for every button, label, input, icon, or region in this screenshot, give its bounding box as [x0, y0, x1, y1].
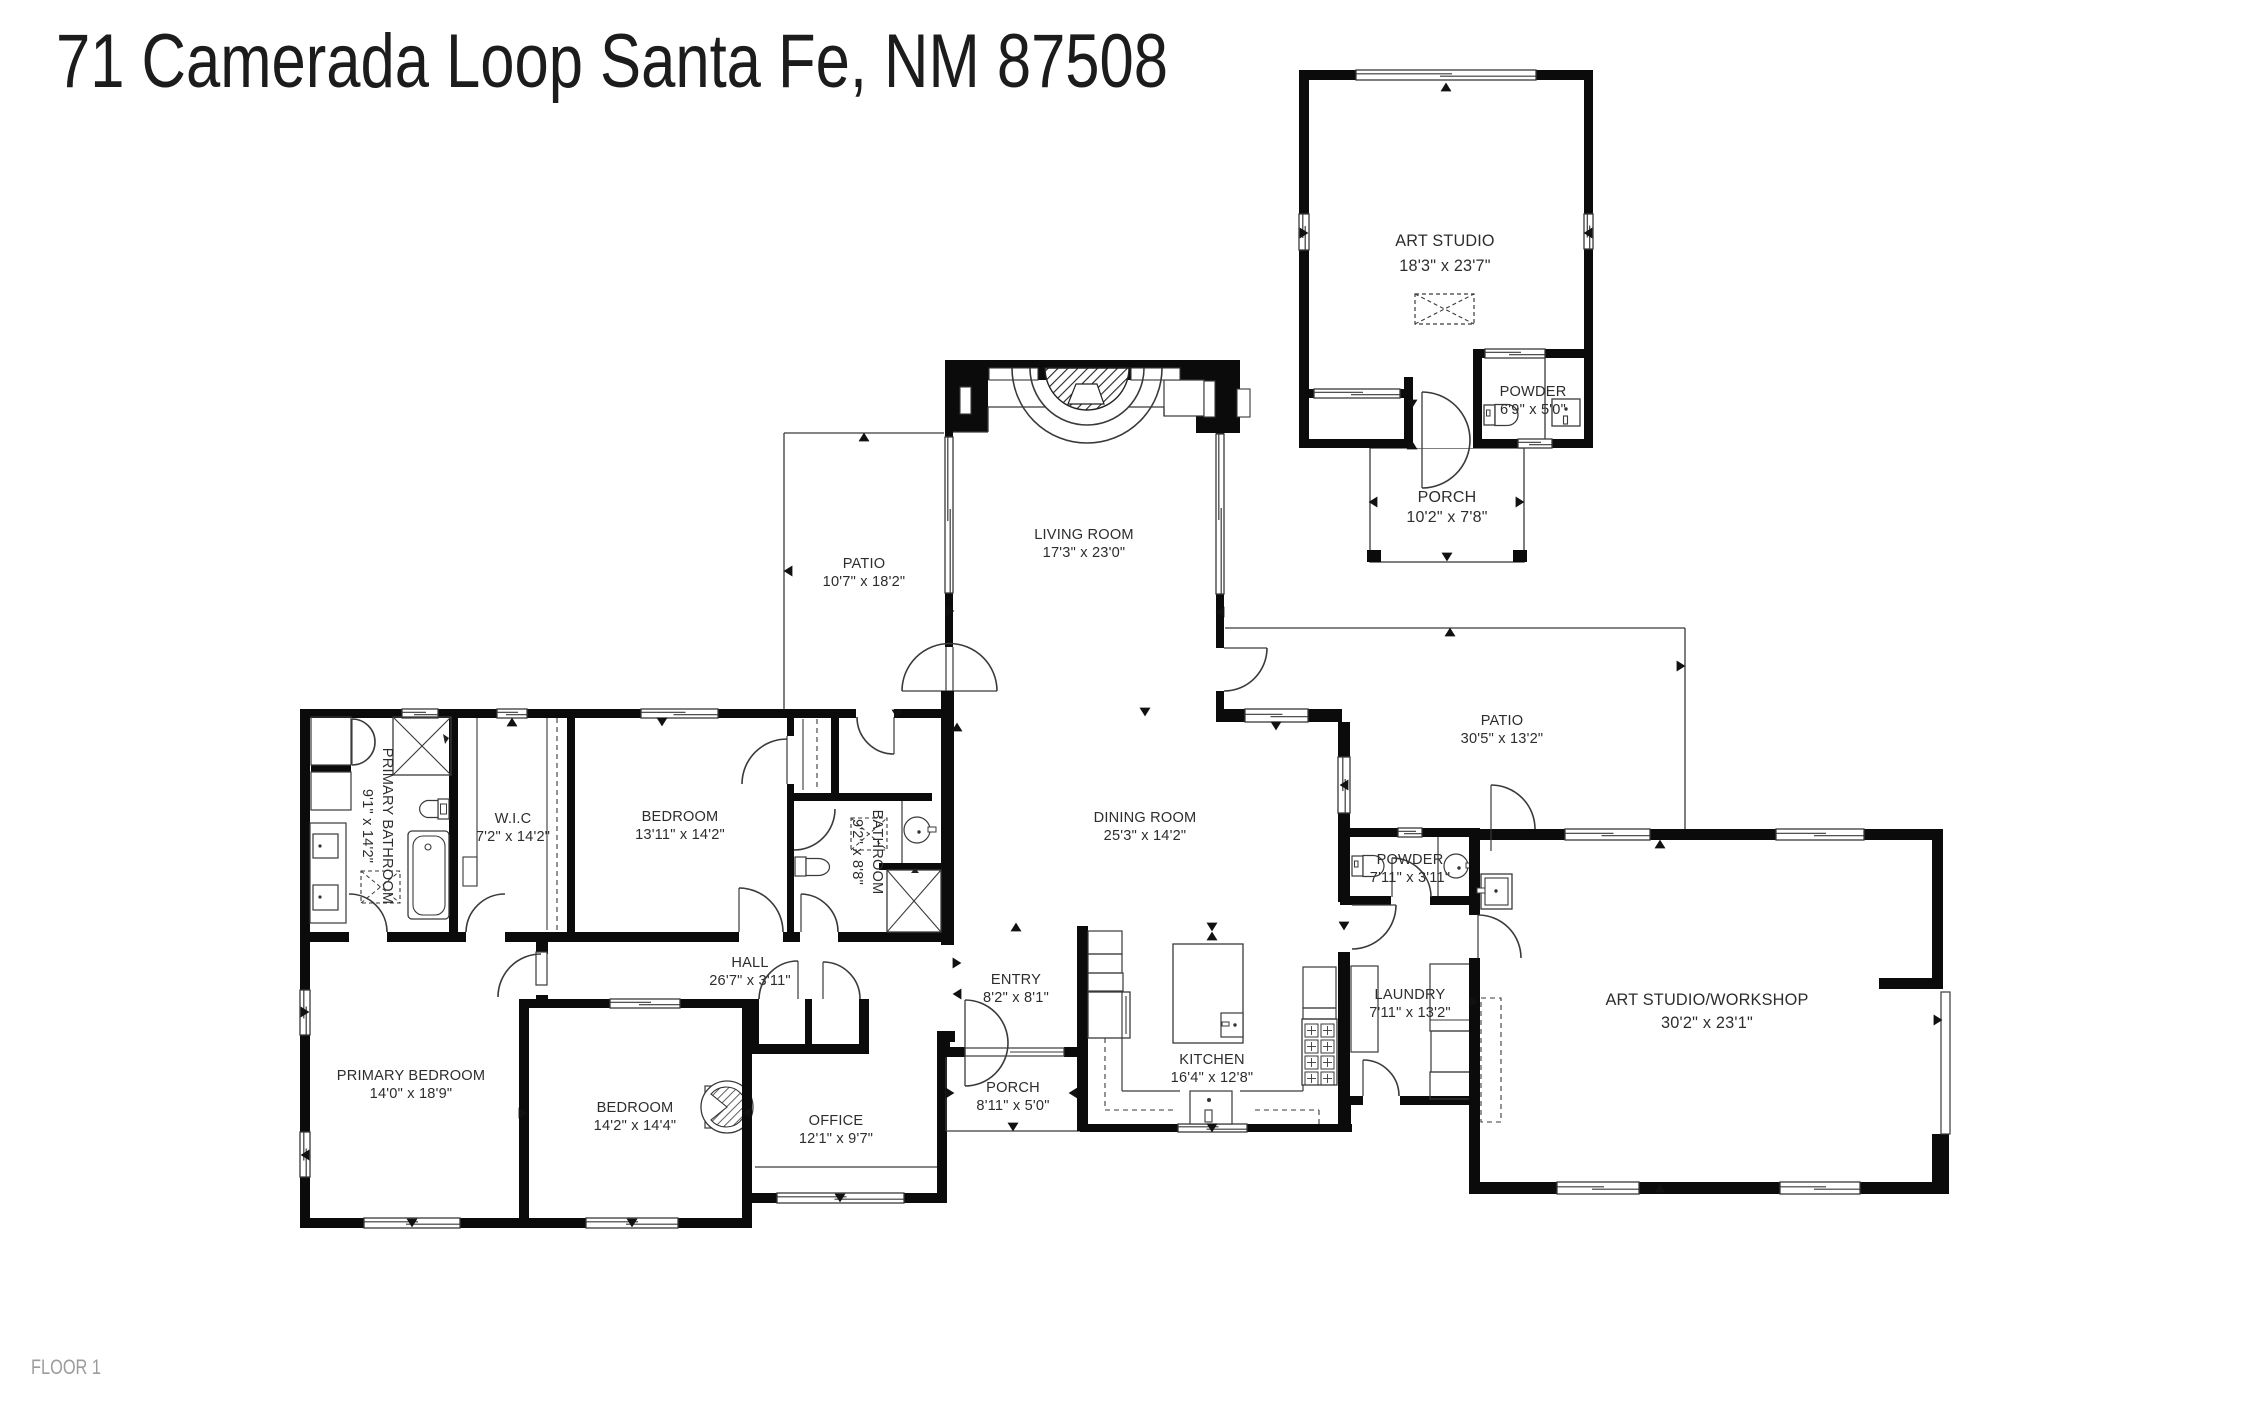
svg-text:DINING ROOM: DINING ROOM: [1094, 810, 1197, 826]
svg-text:LAUNDRY: LAUNDRY: [1375, 987, 1446, 1003]
svg-text:POWDER: POWDER: [1500, 384, 1567, 400]
svg-text:7'2" x 14'2": 7'2" x 14'2": [476, 829, 550, 845]
svg-text:30'2" x 23'1": 30'2" x 23'1": [1661, 1014, 1753, 1032]
svg-text:KITCHEN: KITCHEN: [1179, 1052, 1244, 1068]
svg-text:OFFICE: OFFICE: [809, 1113, 864, 1129]
svg-text:13'11" x 14'2": 13'11" x 14'2": [635, 827, 725, 843]
svg-text:HALL: HALL: [731, 955, 768, 971]
svg-text:14'2" x 14'4": 14'2" x 14'4": [594, 1118, 677, 1134]
svg-text:17'3" x 23'0": 17'3" x 23'0": [1043, 545, 1126, 561]
svg-text:6'9" x 5'0": 6'9" x 5'0": [1500, 402, 1566, 418]
svg-text:LIVING ROOM: LIVING ROOM: [1034, 527, 1134, 543]
svg-text:ART STUDIO/WORKSHOP: ART STUDIO/WORKSHOP: [1605, 991, 1808, 1009]
svg-text:PORCH: PORCH: [986, 1080, 1040, 1096]
svg-text:10'7" x 18'2": 10'7" x 18'2": [823, 574, 906, 590]
svg-text:7'11" x 3'11": 7'11" x 3'11": [1370, 870, 1450, 886]
svg-text:FLOOR 1: FLOOR 1: [31, 1355, 101, 1379]
svg-text:POWDER: POWDER: [1377, 852, 1444, 868]
svg-text:PATIO: PATIO: [1481, 713, 1524, 729]
svg-text:BEDROOM: BEDROOM: [642, 809, 719, 825]
svg-text:PORCH: PORCH: [1418, 489, 1477, 506]
svg-text:18'3" x 23'7": 18'3" x 23'7": [1399, 257, 1490, 275]
svg-text:8'2" x 8'1": 8'2" x 8'1": [983, 990, 1049, 1006]
svg-text:BATHROOM: BATHROOM: [869, 810, 885, 895]
svg-text:26'7" x 3'11": 26'7" x 3'11": [709, 973, 791, 989]
svg-text:25'3" x 14'2": 25'3" x 14'2": [1104, 828, 1187, 844]
svg-text:9'2" x 8'8": 9'2" x 8'8": [849, 819, 865, 885]
svg-text:PRIMARY BATHROOM: PRIMARY BATHROOM: [379, 748, 395, 904]
svg-text:PRIMARY BEDROOM: PRIMARY BEDROOM: [337, 1068, 485, 1084]
svg-text:7'11" x 13'2": 7'11" x 13'2": [1369, 1005, 1451, 1021]
svg-text:10'2" x 7'8": 10'2" x 7'8": [1406, 509, 1487, 526]
svg-text:8'11" x 5'0": 8'11" x 5'0": [976, 1098, 1049, 1114]
svg-text:71 Camerada Loop Santa Fe, NM: 71 Camerada Loop Santa Fe, NM 87508: [56, 19, 1168, 104]
svg-text:12'1" x 9'7": 12'1" x 9'7": [799, 1131, 873, 1147]
svg-text:BEDROOM: BEDROOM: [597, 1100, 674, 1116]
svg-text:16'4" x 12'8": 16'4" x 12'8": [1171, 1070, 1254, 1086]
svg-text:14'0" x 18'9": 14'0" x 18'9": [370, 1086, 453, 1102]
svg-text:W.I.C: W.I.C: [495, 811, 532, 827]
svg-text:30'5" x 13'2": 30'5" x 13'2": [1461, 731, 1544, 747]
svg-text:9'1" x 14'2": 9'1" x 14'2": [359, 789, 375, 863]
svg-text:ENTRY: ENTRY: [991, 972, 1041, 988]
svg-text:PATIO: PATIO: [843, 556, 886, 572]
svg-text:ART STUDIO: ART STUDIO: [1395, 232, 1494, 250]
